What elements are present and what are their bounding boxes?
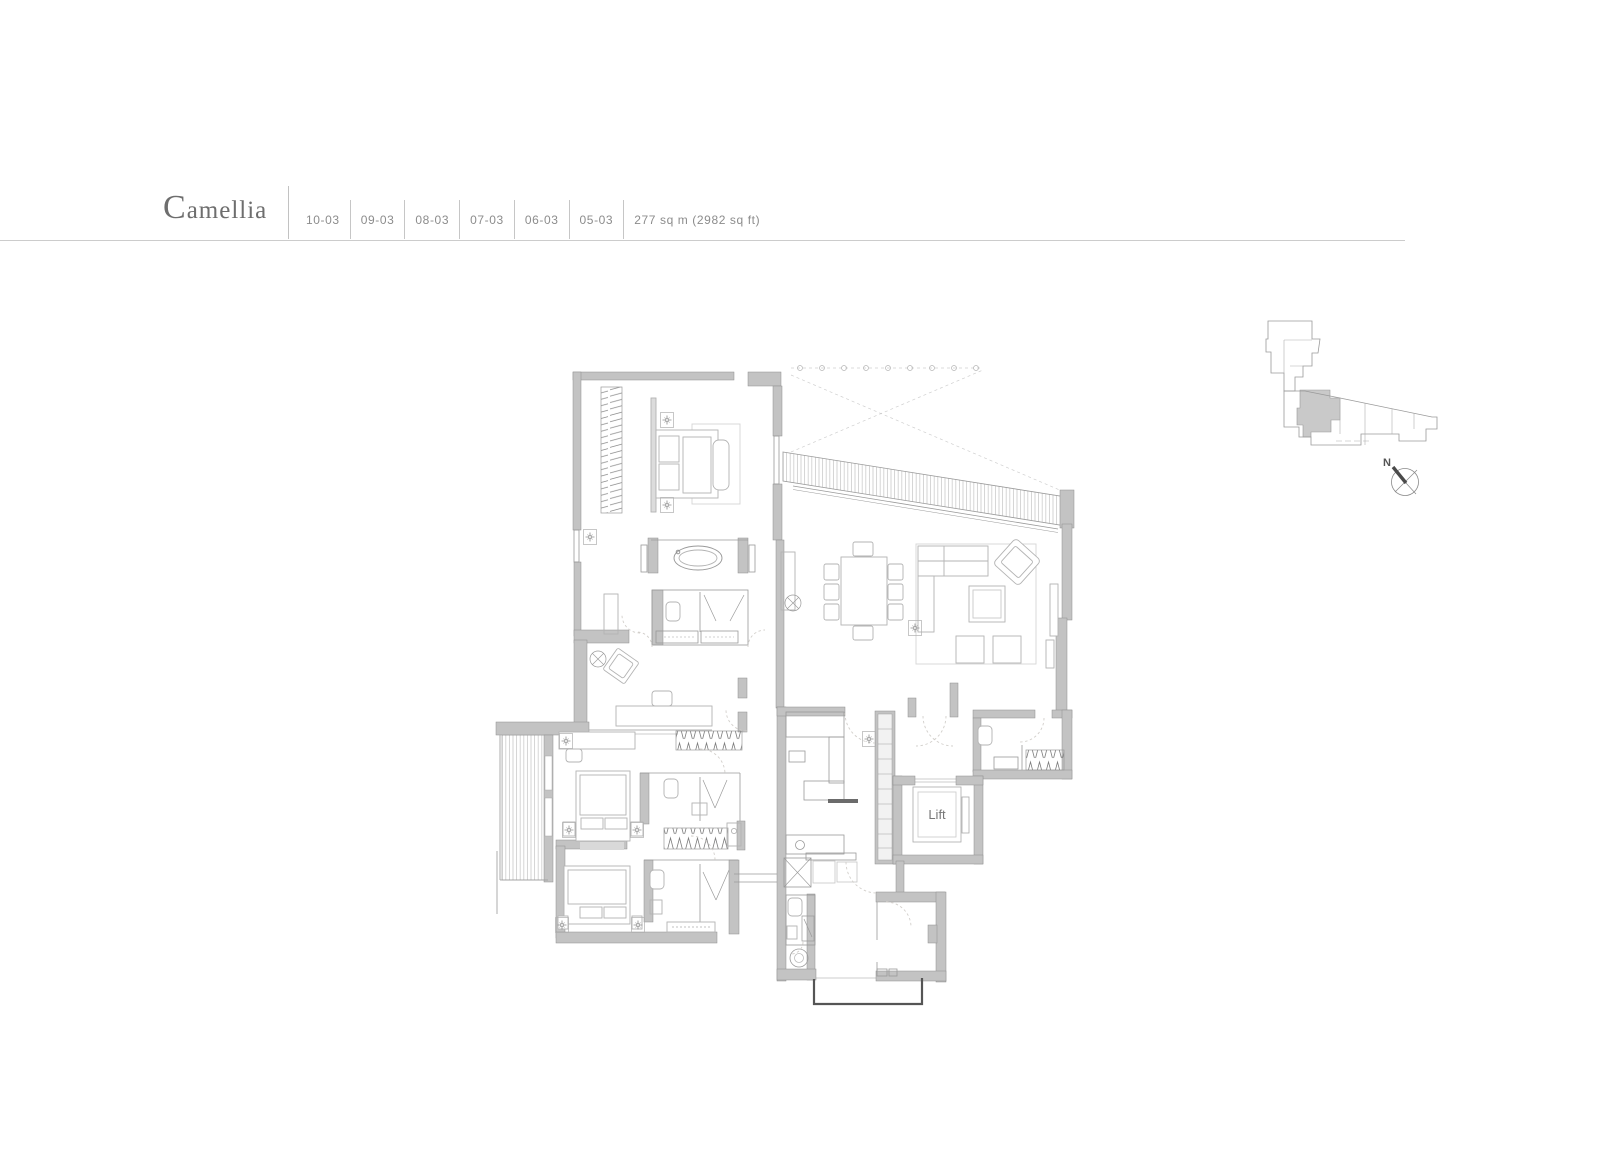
floor-plan-drawing: Lift N	[0, 0, 1600, 1165]
north-label: N	[1383, 457, 1391, 469]
lift-label: Lift	[928, 807, 946, 822]
wardrobe-strips	[664, 731, 1064, 849]
key-plan	[1266, 321, 1437, 445]
north-compass: N	[1383, 457, 1418, 496]
ac-ledge-outline	[814, 978, 922, 1004]
